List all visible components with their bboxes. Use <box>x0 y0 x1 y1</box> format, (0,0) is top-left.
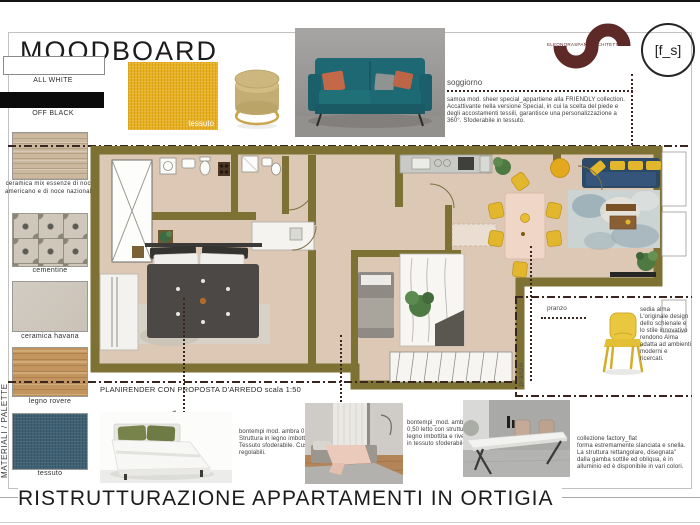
plan-stairs <box>390 352 512 382</box>
plan-stove <box>218 162 230 176</box>
side-label-materiali-palette: MATERIALI / PALETTE <box>0 272 9 478</box>
bed-photo-2 <box>305 403 403 484</box>
pranzo-box-left <box>515 296 517 397</box>
table-photo <box>463 400 570 477</box>
material-label-legno-rovere: legno rovere <box>4 398 96 405</box>
plan-corridor <box>100 274 138 350</box>
pranzo-box-bottom <box>515 395 692 397</box>
fabric-sample-yellow: tessuto <box>128 62 218 130</box>
plan-caption: PLANIRENDER CON PROPOSTA D'ARREDO scala … <box>100 385 301 394</box>
pouf-photo <box>222 58 292 132</box>
plan-pouf <box>551 159 570 178</box>
plan-balconies <box>662 152 686 332</box>
material-label-ceramica-mix: ceramica mix essenze di noce americano e… <box>4 181 96 196</box>
plan-coffee-table <box>610 216 636 229</box>
material-swatch-ceramica-havana <box>12 281 88 332</box>
plan-kitchen <box>400 155 492 173</box>
material-label-cementine: cementine <box>4 267 96 274</box>
bottom-rule <box>0 522 700 523</box>
material-swatch-off-black <box>0 92 104 108</box>
moodboard-page: MOODBOARD ELEONORASPANOARCHITETTO [f_s] … <box>0 0 700 525</box>
sofa-photo <box>295 28 445 137</box>
fs-badge-label: [f_s] <box>655 42 681 58</box>
plan-dining-table <box>505 193 545 259</box>
studio-name: ELEONORASPANOARCHITETTO <box>547 42 607 47</box>
material-swatch-legno-rovere <box>12 347 88 397</box>
material-label-ceramica-havana: ceramica havana <box>4 333 96 340</box>
material-swatch-ceramica-mix <box>12 132 88 180</box>
soggiorno-connector-line <box>631 74 633 145</box>
footer-title: RISTRUTTURAZIONE APPARTAMENTI IN ORTIGIA <box>18 487 562 511</box>
material-swatch-cementine <box>12 213 88 267</box>
pranzo-v-label: pranzo <box>518 348 525 386</box>
material-swatch-all-white <box>3 56 105 75</box>
fabric-sample-label: tessuto <box>188 119 214 128</box>
plan-bottom-line <box>8 381 515 383</box>
pranzo-box-top <box>515 296 692 298</box>
bed-photo-1 <box>100 412 232 483</box>
soggiorno-note: samoa mod. sheer special_appartiene alla… <box>447 97 629 125</box>
soggiorno-underline <box>447 90 633 92</box>
material-label-all-white: ALL WHITE <box>3 77 103 84</box>
soggiorno-label: soggiorno <box>447 78 482 87</box>
material-label-tessuto-blu: tessuto <box>4 470 96 477</box>
top-rule <box>0 0 700 2</box>
material-swatch-tessuto-blu <box>12 413 88 470</box>
plan-tv-console <box>610 272 656 277</box>
pranzo-line <box>530 246 532 381</box>
material-label-off-black: OFF BLACK <box>3 110 103 117</box>
chair-note: sedia alma L'originale design dello schi… <box>640 307 692 363</box>
fs-badge: [f_s] <box>641 23 695 77</box>
table-note: collezione factory_flat forma estremamen… <box>577 436 691 471</box>
pranzo-h-label: pranzo <box>547 305 567 312</box>
